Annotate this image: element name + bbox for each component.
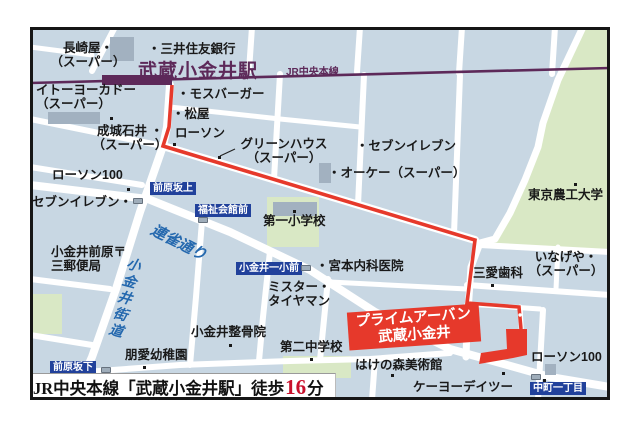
poi-dot — [293, 210, 296, 213]
map-label: ・セブンイレブン — [356, 139, 456, 153]
poi-dot — [491, 284, 494, 287]
map-label: ケーヨーデイツー — [413, 380, 513, 394]
map-label: ローソン100 — [52, 168, 123, 182]
map-label: 朋愛幼稚園 — [125, 348, 188, 362]
bus-stop-icon — [531, 374, 541, 380]
poi-dot — [310, 358, 313, 361]
poi-dot — [143, 366, 146, 369]
poi-dot — [218, 156, 221, 159]
bus-stop-icon — [198, 217, 208, 223]
map-label: 第二中学校 — [280, 340, 343, 354]
map-label: ・オーケー（スーパー） — [328, 166, 465, 180]
map-label: 長崎屋・ （スーパー） — [33, 41, 143, 69]
map-label: グリーンハウス （スーパー） — [236, 137, 332, 165]
map-label: 小金井整骨院 — [191, 325, 266, 339]
map-label: 三愛歯科 — [473, 266, 523, 280]
map-label: いなげや・ （スーパー） — [528, 250, 604, 278]
map-label: ミスター・ タイヤマン — [268, 280, 331, 308]
poi-dot — [127, 188, 130, 191]
station-name-label: 武蔵小金井駅 — [138, 56, 258, 83]
bus-stop-badge: 小金井一小前 — [236, 262, 302, 275]
bus-stop-badge: 前原坂上 — [150, 182, 196, 195]
bus-stop-icon — [133, 198, 143, 204]
map-label: ・松屋 — [172, 107, 210, 121]
rail-line-label: JR中央本線 — [286, 63, 339, 78]
walk-time-caption: JR中央本線「武蔵小金井駅」徒歩 16 分 — [30, 373, 336, 400]
bus-stop-badge: 中町一丁目 — [530, 382, 586, 395]
poi-dot — [110, 117, 113, 120]
poi-dot — [391, 374, 394, 377]
map-label: ・三井住友銀行 — [148, 42, 236, 56]
map-label: 第一小学校 — [263, 214, 326, 228]
poi-dot — [502, 372, 505, 375]
map-label: セブンイレブン・ — [32, 195, 132, 209]
bus-stop-icon — [301, 265, 311, 271]
map-label: ・宮本内科医院 — [316, 259, 404, 273]
poi-dot — [574, 183, 577, 186]
caption-prefix: JR中央本線「武蔵小金井駅」徒歩 — [33, 375, 284, 399]
caption-suffix: 分 — [307, 375, 324, 399]
map-label: イトーヨーカドー （スーパー） — [36, 83, 136, 111]
poi-dot — [173, 143, 176, 146]
route-map: 長崎屋・ （スーパー）・三井住友銀行イトーヨーカドー （スーパー）・モスバーガー… — [30, 27, 610, 400]
map-label: ローソン — [175, 126, 225, 140]
map-label: 成城石井 ・ （スーパー） — [88, 124, 172, 152]
destination-building — [479, 329, 527, 364]
map-label: はけの森美術館 — [355, 358, 443, 372]
greenhouse-pointer — [220, 149, 235, 156]
poi-dot — [229, 344, 232, 347]
map-label: ・モスバーガー — [177, 87, 265, 101]
map-label: 小金井前原〒 三郵便局 — [51, 245, 126, 273]
bus-stop-badge: 福祉会館前 — [195, 204, 251, 217]
caption-minutes: 16 — [285, 375, 306, 400]
map-label: ローソン100 — [531, 350, 602, 364]
map-label: 東京農工大学 — [528, 188, 603, 202]
